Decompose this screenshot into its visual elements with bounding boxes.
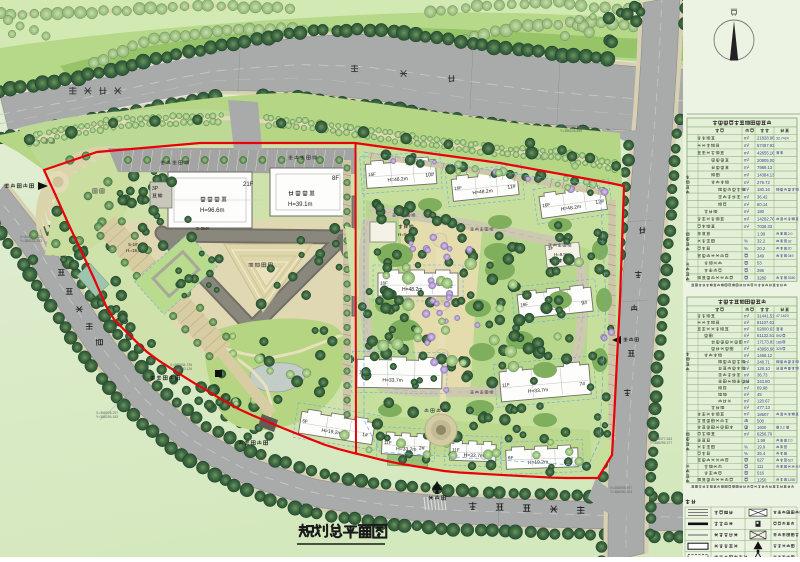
svg-text:%: %	[744, 239, 748, 244]
svg-text:m²: m²	[744, 372, 750, 377]
svg-text:12#: 12#	[595, 199, 605, 206]
svg-text:17173.83: 17173.83	[757, 340, 775, 345]
svg-text:276.72: 276.72	[757, 180, 770, 185]
svg-text:m²: m²	[744, 172, 750, 177]
svg-text:36.73: 36.73	[757, 373, 768, 378]
svg-text:m²: m²	[744, 392, 750, 397]
svg-text:2.0: 2.0	[788, 439, 793, 443]
svg-text:349: 349	[757, 253, 765, 258]
svg-text:16F: 16F	[454, 185, 463, 191]
svg-text:477.13: 477.13	[757, 405, 770, 410]
svg-text:186: 186	[776, 340, 782, 344]
svg-text:61132.51: 61132.51	[757, 333, 775, 338]
svg-text:32: 32	[788, 239, 792, 243]
svg-text:47.1623: 47.1623	[776, 314, 789, 318]
svg-text:32.7424: 32.7424	[776, 136, 789, 140]
svg-text:H=39.1m: H=39.1m	[288, 202, 313, 208]
svg-text:19.9: 19.9	[757, 445, 766, 450]
svg-text:6256.70: 6256.70	[757, 431, 773, 436]
svg-text:m²: m²	[744, 224, 750, 229]
svg-text:1#: 1#	[362, 432, 369, 439]
svg-text:592: 592	[776, 334, 782, 338]
svg-text:H=19.2m: H=19.2m	[528, 459, 549, 466]
svg-text:516: 516	[757, 471, 765, 476]
svg-text:42655.16: 42655.16	[757, 150, 775, 155]
svg-text:m²: m²	[744, 150, 750, 155]
svg-text:129.10: 129.10	[757, 366, 770, 371]
svg-text:m²: m²	[744, 320, 750, 325]
svg-text:180: 180	[757, 209, 765, 214]
svg-text:m²: m²	[744, 209, 750, 214]
svg-text:111: 111	[757, 464, 764, 469]
svg-text:m²: m²	[744, 180, 750, 185]
svg-text:m²: m²	[744, 431, 750, 436]
svg-text:627: 627	[788, 458, 794, 462]
svg-text:m²: m²	[744, 359, 750, 364]
svg-text:m²: m²	[744, 314, 750, 319]
svg-text:m²: m²	[744, 195, 750, 200]
svg-text:16F: 16F	[368, 172, 376, 178]
svg-text:320: 320	[776, 347, 782, 351]
svg-text:296: 296	[757, 268, 765, 273]
svg-text:H=33.7m: H=33.7m	[464, 453, 485, 460]
svg-text:7989.13: 7989.13	[757, 165, 773, 170]
svg-text:m²: m²	[744, 379, 750, 384]
svg-text:20805.00: 20805.00	[757, 158, 775, 163]
svg-text:627: 627	[757, 458, 765, 463]
svg-text:32.2: 32.2	[757, 239, 766, 244]
svg-text:Y=386255.183: Y=386255.183	[96, 415, 118, 419]
svg-text:500: 500	[757, 418, 765, 423]
svg-text:1250: 1250	[757, 477, 767, 482]
svg-text:57457.92: 57457.92	[757, 143, 775, 148]
svg-text:6F: 6F	[302, 418, 308, 424]
svg-text:20: 20	[788, 247, 792, 251]
svg-text:16F: 16F	[520, 302, 529, 308]
svg-text:%: %	[744, 451, 748, 456]
svg-text:248.71: 248.71	[757, 359, 770, 364]
svg-text:69.98: 69.98	[757, 386, 768, 391]
svg-text:62800.63: 62800.63	[757, 327, 775, 332]
svg-text:60.14: 60.14	[757, 202, 768, 207]
svg-text:9#: 9#	[581, 300, 587, 307]
svg-text:m²: m²	[744, 165, 750, 170]
svg-text:m²: m²	[744, 399, 750, 404]
svg-text:349: 349	[788, 254, 794, 258]
svg-text:1.99: 1.99	[757, 438, 766, 443]
svg-text:3P: 3P	[152, 186, 159, 192]
svg-text:1468.12: 1468.12	[757, 353, 773, 358]
svg-text:36.42: 36.42	[757, 195, 768, 200]
svg-text:%: %	[744, 445, 748, 450]
svg-text:8F: 8F	[332, 176, 339, 182]
svg-text:7036.33: 7036.33	[757, 224, 773, 229]
svg-text:6F: 6F	[508, 455, 514, 460]
svg-text:16F: 16F	[380, 280, 388, 285]
svg-text:m²: m²	[744, 412, 750, 417]
svg-text:21828.96: 21828.96	[757, 136, 775, 141]
svg-text:m²: m²	[744, 366, 750, 371]
svg-text:m²: m²	[744, 158, 750, 163]
svg-text:180.16: 180.16	[757, 187, 770, 192]
svg-text:11F: 11F	[502, 382, 510, 388]
svg-text:35.4: 35.4	[757, 451, 766, 456]
svg-text:7#: 7#	[579, 381, 585, 387]
svg-text:m²: m²	[744, 386, 750, 391]
svg-text:Y=386230.126: Y=386230.126	[170, 367, 192, 371]
svg-text:3280: 3280	[788, 276, 796, 280]
svg-text:Y=386245.859: Y=386245.859	[560, 129, 582, 133]
svg-text:11#: 11#	[507, 184, 516, 191]
svg-text:m²: m²	[744, 143, 750, 148]
svg-text:m²: m²	[744, 405, 750, 410]
svg-text:31441.51: 31441.51	[757, 314, 775, 319]
svg-text:81107.63: 81107.63	[757, 320, 775, 325]
svg-text:21F: 21F	[243, 182, 254, 188]
svg-text:1250: 1250	[788, 478, 796, 482]
svg-text:3.2: 3.2	[780, 426, 785, 430]
svg-text:Y=386231.353: Y=386231.353	[20, 239, 42, 243]
svg-text:m²: m²	[744, 202, 750, 207]
svg-text:m²: m²	[744, 136, 750, 141]
svg-text:2.0: 2.0	[788, 232, 793, 236]
svg-text:20.2: 20.2	[757, 246, 766, 251]
svg-text:1600: 1600	[757, 425, 767, 430]
svg-text:m²: m²	[744, 353, 750, 358]
svg-text:3F: 3F	[548, 246, 553, 251]
svg-text:1.99: 1.99	[757, 231, 766, 236]
svg-text:m²: m²	[744, 346, 750, 351]
svg-text:m²: m²	[744, 187, 750, 192]
svg-text:m²: m²	[744, 327, 750, 332]
svg-text:53: 53	[757, 261, 762, 266]
svg-text:14282.76: 14282.76	[757, 217, 775, 222]
svg-text:43958.68: 43958.68	[757, 346, 775, 351]
svg-text:2#: 2#	[419, 445, 425, 451]
svg-text:m²: m²	[744, 340, 750, 345]
svg-text:H=96.6m: H=96.6m	[200, 208, 225, 214]
svg-text:120.67: 120.67	[757, 399, 770, 404]
svg-text:S-1#: S-1#	[128, 242, 138, 247]
svg-text:S-3M#: S-3M#	[196, 226, 210, 231]
svg-text:Y=386295.377: Y=386295.377	[650, 441, 672, 445]
svg-text:10#: 10#	[425, 172, 434, 179]
svg-text:343.80: 343.80	[757, 379, 770, 384]
svg-text:18507: 18507	[757, 412, 769, 417]
svg-text:m²: m²	[744, 333, 750, 338]
svg-text:14384.13: 14384.13	[757, 173, 775, 178]
svg-text:%: %	[744, 246, 748, 251]
svg-text:H=33.7m: H=33.7m	[382, 378, 403, 384]
svg-text:3280: 3280	[757, 275, 767, 280]
svg-text:m²: m²	[744, 217, 750, 222]
svg-text:Y=386250.304: Y=386250.304	[610, 490, 632, 494]
svg-text:45: 45	[757, 392, 762, 397]
